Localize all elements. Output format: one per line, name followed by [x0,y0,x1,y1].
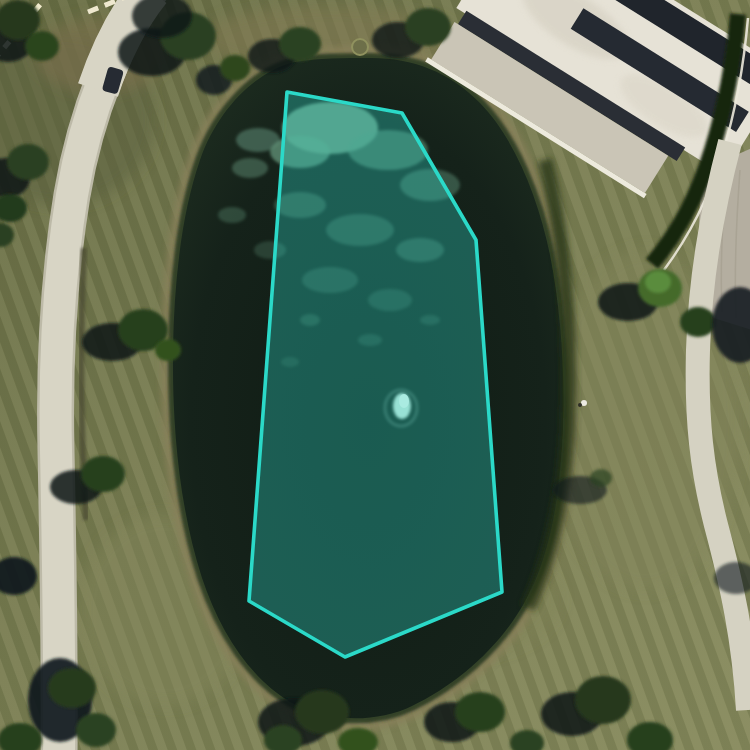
aerial-imagery [0,0,750,750]
bare-spot [352,39,368,55]
map-canvas[interactable] [0,0,750,750]
